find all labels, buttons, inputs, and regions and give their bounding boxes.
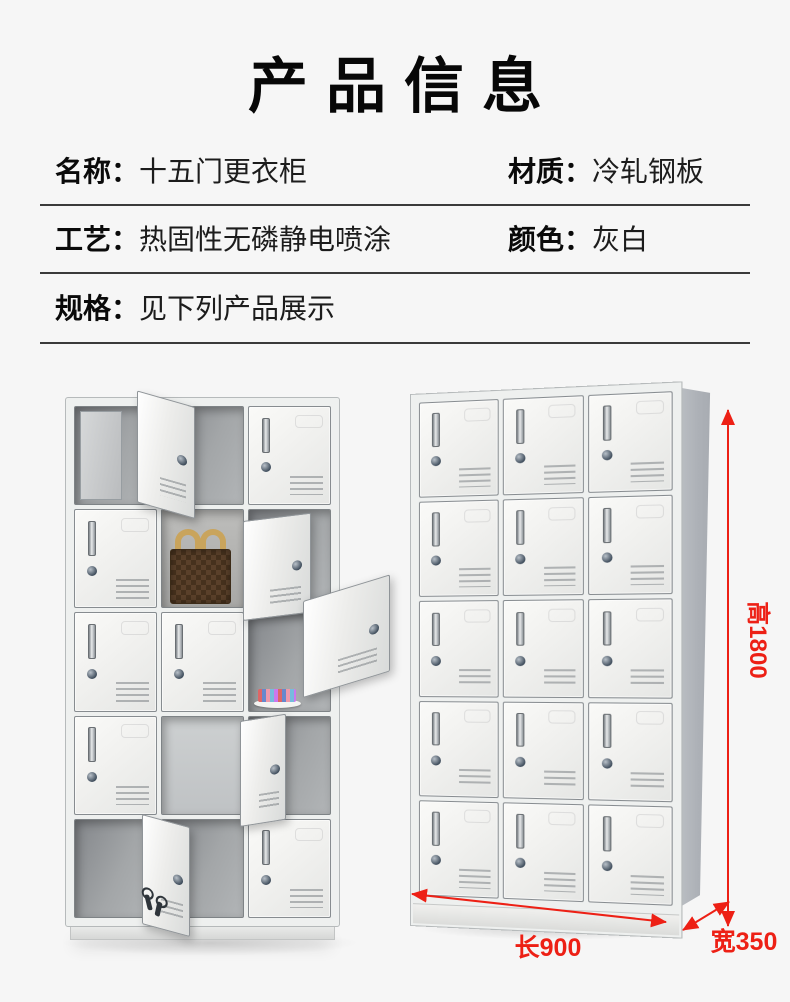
spec-value-process: 热固性无磷静电喷涂 xyxy=(139,224,391,255)
right-locker-cell-r4c3 xyxy=(588,702,672,802)
left-locker-cell-r2c3-open-door-leaf xyxy=(243,513,311,621)
right-locker-cell-r3c1-vents xyxy=(459,669,490,688)
left-locker-cell-r4c2 xyxy=(161,716,244,815)
left-locker-cell-r5c3-stamp-mark xyxy=(295,828,323,842)
right-locker-cell-r5c2-stamp-mark xyxy=(549,812,576,826)
right-locker-cell-r5c3-handle-icon xyxy=(602,816,610,851)
right-locker-cell-r5c2-lock-icon xyxy=(515,857,525,868)
right-locker-cell-r2c1-vents xyxy=(459,568,490,587)
left-locker-cell-r4c1-door xyxy=(74,716,157,815)
right-locker-cell-r2c2-lock-icon xyxy=(515,554,525,564)
right-locker-cell-r3c2-stamp-mark xyxy=(549,608,576,622)
left-locker-cell-r1c3-handle-icon xyxy=(262,418,270,453)
spec-label-size: 规格： xyxy=(55,293,139,324)
right-locker-cell-r1c2-door xyxy=(502,395,584,495)
right-locker-cell-r4c2-door xyxy=(502,701,584,800)
left-locker-cell-r5c3-handle-icon xyxy=(262,830,270,865)
right-locker-cell-r4c2-handle-icon xyxy=(516,713,524,747)
left-locker-cell-r3c1-door xyxy=(74,612,157,711)
left-locker-cell-r1c3-stamp-mark xyxy=(295,415,323,429)
left-locker-cell-r4c3-leaf-vents xyxy=(259,791,279,811)
left-locker-cell-r3c2-stamp-mark xyxy=(208,621,236,635)
right-locker-cell-r5c3 xyxy=(588,804,672,906)
left-locker-cell-r4c3-leaf-lock-icon xyxy=(270,764,280,776)
right-locker-cell-r2c1-lock-icon xyxy=(431,556,441,566)
left-locker-cell-r5c2-leaf-lock-icon xyxy=(173,873,183,886)
left-locker-cell-r3c1-handle-icon xyxy=(88,624,96,659)
right-locker-cell-r5c3-vents xyxy=(631,875,664,896)
spec-value-color: 灰白 xyxy=(592,224,648,255)
right-locker-cell-r2c3-handle-icon xyxy=(602,508,610,543)
right-locker-cell-r2c3 xyxy=(588,495,672,596)
left-locker-cell-r1c3-door xyxy=(248,406,331,505)
right-locker-cell-r1c2 xyxy=(502,395,584,495)
left-locker-cell-r4c1-vents xyxy=(116,786,148,805)
spec-row-material: 材质：冷轧钢板 xyxy=(508,150,704,190)
right-locker-cell-r5c2 xyxy=(502,802,584,902)
left-locker-cell-r2c1-stamp-mark xyxy=(121,518,149,532)
left-locker-cell-r5c2-open-door-leaf xyxy=(142,814,190,937)
right-locker-front xyxy=(410,381,682,938)
right-locker-cell-r4c1-stamp-mark xyxy=(464,710,490,723)
right-locker-cell-r5c3-door xyxy=(588,804,672,906)
right-locker-cell-r3c2-vents xyxy=(544,669,576,688)
left-locker-cell-r3c1 xyxy=(74,612,157,711)
right-locker-cell-r4c3-handle-icon xyxy=(602,714,610,749)
left-locker-cell-r4c1-lock-icon xyxy=(87,772,97,782)
right-locker-photo xyxy=(410,394,672,926)
right-locker-cell-r2c3-vents xyxy=(631,565,664,585)
right-locker-cell-r3c1-handle-icon xyxy=(432,612,440,646)
spec-row-process: 工艺：热固性无磷静电喷涂 xyxy=(55,218,391,258)
left-locker-cell-r1c3-vents xyxy=(290,476,322,495)
left-locker-cell-r2c3-leaf-vents xyxy=(270,585,300,604)
left-locker-photo xyxy=(65,397,340,941)
left-locker-cell-r1c3-lock-icon xyxy=(261,462,271,472)
right-locker-cell-r4c3-vents xyxy=(631,772,664,792)
right-locker-cell-r5c2-handle-icon xyxy=(516,814,524,848)
right-locker-cell-r1c3-lock-icon xyxy=(602,450,613,461)
right-locker-cell-r5c1-vents xyxy=(459,869,490,889)
handbag xyxy=(170,549,231,603)
right-locker-cell-r5c1-lock-icon xyxy=(431,855,441,865)
right-locker-cell-r5c2-door xyxy=(502,802,584,902)
right-locker-cell-r5c1-handle-icon xyxy=(432,812,440,846)
right-locker-cell-r1c1-stamp-mark xyxy=(464,408,490,422)
spec-row-size: 规格：见下列产品展示 xyxy=(55,287,335,327)
divider-line xyxy=(40,204,750,206)
right-locker-cell-r2c1 xyxy=(419,500,498,598)
right-locker-cell-r1c1-vents xyxy=(459,468,490,488)
left-locker-cell-r5c3 xyxy=(248,819,331,918)
right-locker-cell-r5c1 xyxy=(419,800,498,899)
right-locker-cell-r4c3-lock-icon xyxy=(602,758,613,769)
right-locker-cell-r1c2-handle-icon xyxy=(516,409,524,444)
right-locker-cell-r5c3-lock-icon xyxy=(602,860,613,871)
cosmetics-tray xyxy=(254,682,299,707)
left-locker-cell-r1c3 xyxy=(248,406,331,505)
right-locker-cell-r3c1-stamp-mark xyxy=(464,609,490,622)
right-locker-cell-r4c3-door xyxy=(588,702,672,802)
left-locker-cell-r1c1-open-door-inside xyxy=(80,411,122,500)
cosmetics-tray-items xyxy=(258,689,296,702)
right-locker-cell-r2c1-stamp-mark xyxy=(464,509,490,523)
height-dimension-label: 高1800 xyxy=(744,601,772,678)
left-locker-cell-r2c1-vents xyxy=(116,579,148,598)
right-locker-cell-r3c3-lock-icon xyxy=(602,655,613,665)
hanging-keys-icon xyxy=(143,885,165,921)
right-locker-cell-r5c3-stamp-mark xyxy=(636,814,664,828)
left-locker-cell-r5c3-lock-icon xyxy=(261,875,271,885)
right-locker-cell-r2c2-door xyxy=(502,497,584,596)
left-locker-cell-r2c2 xyxy=(161,509,244,608)
left-locker-cell-r4c1-stamp-mark xyxy=(121,724,149,738)
key-icon xyxy=(154,901,162,917)
right-locker-cell-r1c1-handle-icon xyxy=(432,413,440,447)
left-locker-cell-r2c1 xyxy=(74,509,157,608)
right-locker-cell-r2c3-stamp-mark xyxy=(636,504,664,518)
left-locker-cell-r1c2-leaf-vents xyxy=(160,477,186,502)
right-locker-cell-r1c3-door xyxy=(588,391,672,493)
left-locker-cell-r1c2-leaf-lock-icon xyxy=(177,454,187,467)
right-locker-grid xyxy=(411,382,681,914)
left-locker-cell-r3c2-lock-icon xyxy=(174,669,184,679)
right-locker-cell-r1c1-lock-icon xyxy=(431,456,441,466)
spec-label-material: 材质： xyxy=(508,156,592,187)
right-locker-cell-r4c3-stamp-mark xyxy=(636,711,664,725)
left-locker-cell-r2c1-door xyxy=(74,509,157,608)
right-locker-cell-r2c1-handle-icon xyxy=(432,513,440,547)
right-locker-cell-r2c1-door xyxy=(419,500,498,598)
left-locker-cell-r3c2-vents xyxy=(203,682,235,701)
right-locker-cell-r2c2-vents xyxy=(544,567,576,587)
right-locker-cell-r3c3-stamp-mark xyxy=(636,608,664,622)
right-locker-cell-r2c3-door xyxy=(588,495,672,596)
left-locker-base xyxy=(70,927,335,940)
right-locker-cell-r3c1 xyxy=(419,600,498,697)
left-locker-cell-r4c1 xyxy=(74,716,157,815)
right-locker-cell-r5c1-stamp-mark xyxy=(464,810,490,824)
spec-value-name: 十五门更衣柜 xyxy=(139,156,307,187)
left-locker-cell-r3c1-stamp-mark xyxy=(121,621,149,635)
right-locker-cell-r1c3-handle-icon xyxy=(602,406,610,441)
handbag-body xyxy=(170,549,231,603)
spec-label-color: 颜色： xyxy=(508,224,592,255)
right-locker-cell-r4c1-lock-icon xyxy=(431,755,441,765)
right-locker-cell-r3c3-vents xyxy=(631,669,664,689)
left-locker-cell-r1c2-open-door-leaf xyxy=(137,390,195,519)
right-locker-cell-r3c3 xyxy=(588,599,672,699)
right-locker-cell-r3c2-lock-icon xyxy=(515,655,525,665)
spec-value-material: 冷轧钢板 xyxy=(592,156,704,187)
right-locker-cell-r3c2-door xyxy=(502,600,584,698)
right-locker-cell-r1c2-vents xyxy=(544,465,576,485)
right-locker-cell-r4c2 xyxy=(502,701,584,800)
right-locker-cell-r4c1-door xyxy=(419,701,498,798)
right-locker-cell-r1c3 xyxy=(588,391,672,493)
right-locker-cell-r4c1-handle-icon xyxy=(432,712,440,746)
right-locker-cell-r3c1-lock-icon xyxy=(431,655,441,665)
right-locker-cell-r4c2-lock-icon xyxy=(515,756,525,766)
spec-row-name: 名称：十五门更衣柜 xyxy=(55,150,307,190)
spec-label-process: 工艺： xyxy=(55,224,139,255)
left-locker-grid xyxy=(65,397,340,927)
right-locker-cell-r1c3-vents xyxy=(631,462,664,482)
right-locker-cell-r2c2-handle-icon xyxy=(516,510,524,544)
right-locker-cell-r3c2-handle-icon xyxy=(516,612,524,646)
right-locker-cell-r5c2-vents xyxy=(544,872,576,892)
left-locker-cell-r4c3-open-door-leaf xyxy=(240,714,286,827)
right-locker-cell-r4c1 xyxy=(419,701,498,798)
left-locker-cell-r3c3-leaf-lock-icon xyxy=(369,623,379,636)
right-locker-cell-r1c1-door xyxy=(419,399,498,498)
right-locker-cell-r5c1-door xyxy=(419,800,498,899)
divider-line xyxy=(40,342,750,344)
left-locker-cell-r3c1-lock-icon xyxy=(87,669,97,679)
product-info-page: 产品信息 名称：十五门更衣柜 材质：冷轧钢板 工艺：热固性无磷静电喷涂 颜色：灰… xyxy=(0,0,790,1002)
right-locker-cell-r2c3-lock-icon xyxy=(602,553,613,564)
right-locker-cell-r1c3-stamp-mark xyxy=(636,400,664,415)
right-locker-cell-r3c1-door xyxy=(419,600,498,697)
right-locker-cell-r2c2 xyxy=(502,497,584,596)
left-locker-cell-r3c2-handle-icon xyxy=(175,624,183,659)
width-dimension-label: 宽350 xyxy=(711,927,778,956)
spec-value-size: 见下列产品展示 xyxy=(139,293,335,324)
page-title: 产品信息 xyxy=(0,38,790,125)
right-locker-cell-r4c2-stamp-mark xyxy=(549,710,576,724)
left-locker-cell-r3c2 xyxy=(161,612,244,711)
right-locker-cell-r3c2 xyxy=(502,600,584,698)
right-locker-cell-r4c1-vents xyxy=(459,769,490,788)
spec-row-color: 颜色：灰白 xyxy=(508,218,648,258)
right-locker-cell-r1c2-lock-icon xyxy=(515,453,525,464)
left-locker-cell-r3c1-vents xyxy=(116,682,148,701)
left-locker-cell-r3c2-door xyxy=(161,612,244,711)
left-locker-cell-r2c1-handle-icon xyxy=(88,521,96,556)
right-locker-cell-r3c3-door xyxy=(588,599,672,699)
left-locker-cell-r5c3-vents xyxy=(290,889,322,908)
left-locker-cell-r2c1-lock-icon xyxy=(87,566,97,576)
key-icon xyxy=(144,895,153,911)
divider-line xyxy=(40,272,750,274)
left-locker-cell-r4c1-handle-icon xyxy=(88,727,96,762)
left-locker-cell-r5c3-door xyxy=(248,819,331,918)
right-locker-cell-r3c3-handle-icon xyxy=(602,611,610,646)
right-locker-cell-r1c1 xyxy=(419,399,498,498)
left-locker-cell-r3c3-leaf-vents xyxy=(338,648,377,675)
right-locker-cell-r1c2-stamp-mark xyxy=(549,404,576,419)
right-locker-cell-r4c2-vents xyxy=(544,770,576,790)
spec-label-name: 名称： xyxy=(55,156,139,187)
left-locker-cell-r2c3-leaf-lock-icon xyxy=(292,560,302,571)
right-locker-cell-r2c2-stamp-mark xyxy=(549,506,576,520)
